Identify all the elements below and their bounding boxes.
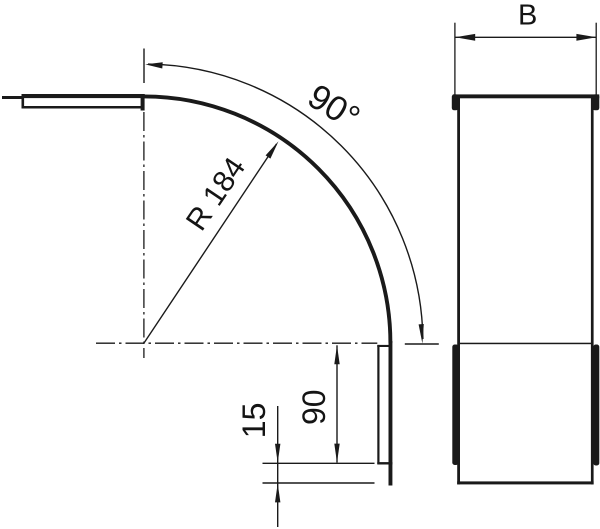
svg-text:15: 15 <box>236 403 272 439</box>
svg-text:90°: 90° <box>301 77 367 138</box>
svg-text:B: B <box>518 0 537 31</box>
svg-text:R 184: R 184 <box>180 152 252 237</box>
svg-text:90: 90 <box>296 389 332 425</box>
